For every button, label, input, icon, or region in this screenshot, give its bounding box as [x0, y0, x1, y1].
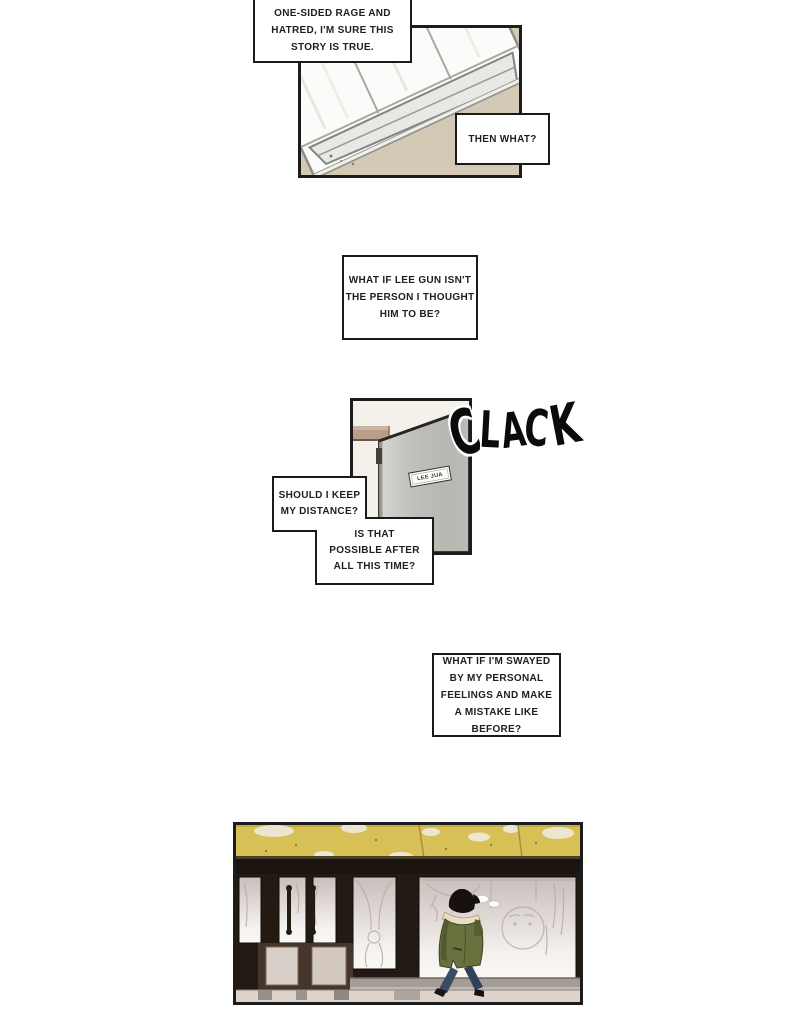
sidewalk — [236, 990, 580, 1002]
storefront-illustration — [236, 825, 580, 1002]
thought-box-6: WHAT IF I'M SWAYED BY MY PERSONAL FEELIN… — [432, 653, 561, 737]
door-hinge — [376, 448, 382, 464]
thought-box-3: WHAT IF LEE GUN ISN'T THE PERSON I THOUG… — [342, 255, 478, 340]
thought-text-2: THEN WHAT? — [468, 131, 536, 148]
thought-box-1: ONE-SIDED RAGE AND HATRED, I'M SURE THIS… — [253, 0, 412, 63]
thought-text-1: ONE-SIDED RAGE AND HATRED, I'M SURE THIS… — [271, 5, 393, 56]
thought-box-5: IS THAT POSSIBLE AFTER ALL THIS TIME? — [316, 518, 433, 584]
thought-text-3: WHAT IF LEE GUN ISN'T THE PERSON I THOUG… — [346, 272, 475, 323]
thought-box-group: SHOULD I KEEP MY DISTANCE? IS THAT POSSI… — [271, 475, 436, 587]
awning — [236, 825, 580, 860]
wall-speck — [330, 155, 333, 158]
thought-box-2: THEN WHAT? — [455, 113, 550, 165]
fascia-strip — [236, 859, 580, 874]
double-doors — [258, 943, 353, 990]
thought-text-4: SHOULD I KEEP MY DISTANCE? — [279, 488, 361, 520]
window-sill — [350, 978, 580, 990]
thought-text-5: IS THAT POSSIBLE AFTER ALL THIS TIME? — [329, 527, 420, 575]
panel-storefront — [233, 822, 583, 1005]
sfx-letter: K — [545, 390, 586, 459]
thought-text-6: WHAT IF I'M SWAYED BY MY PERSONAL FEELIN… — [441, 653, 552, 738]
sfx-clack-text: C L A C K — [447, 395, 574, 485]
